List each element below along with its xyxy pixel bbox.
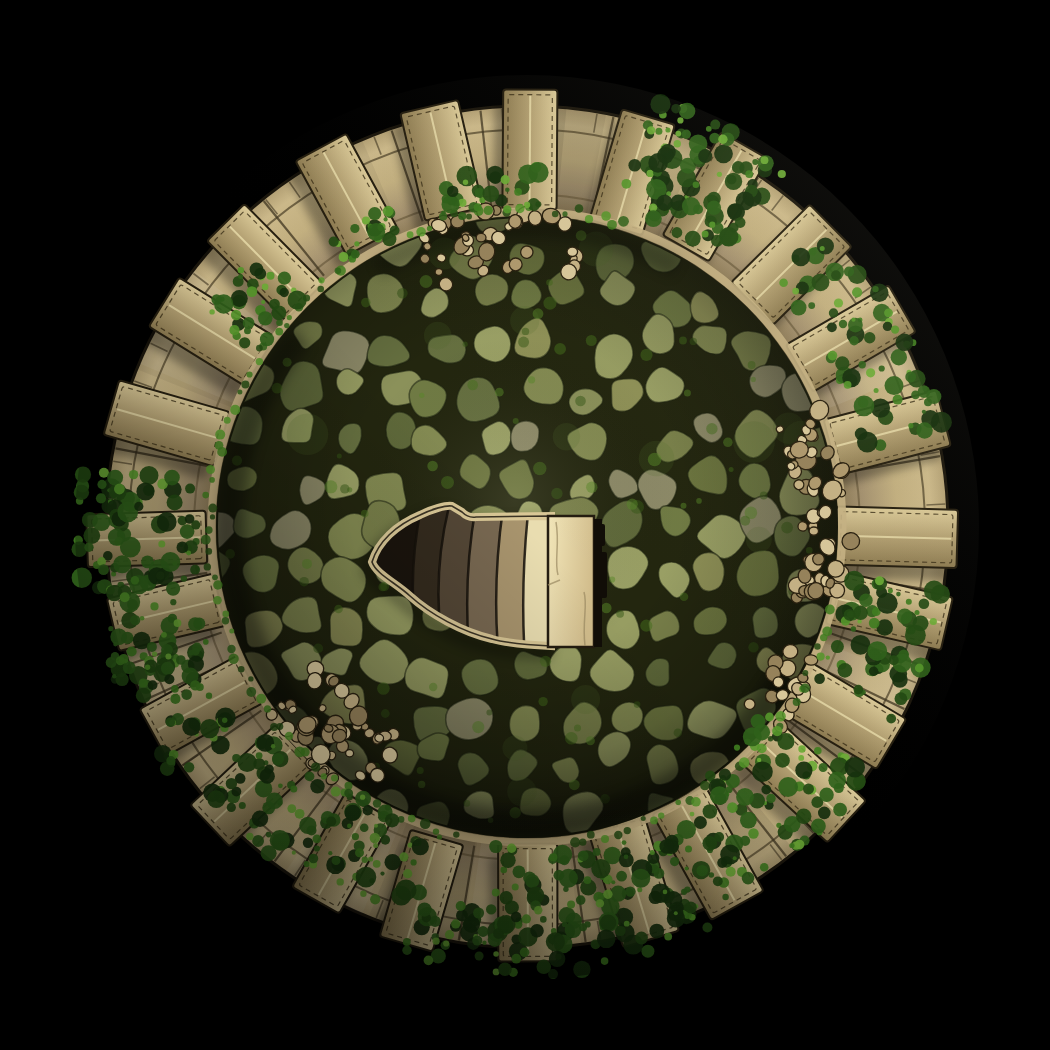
tower-map-image [0, 0, 1050, 1050]
tower-battlemap [0, 0, 1050, 1050]
